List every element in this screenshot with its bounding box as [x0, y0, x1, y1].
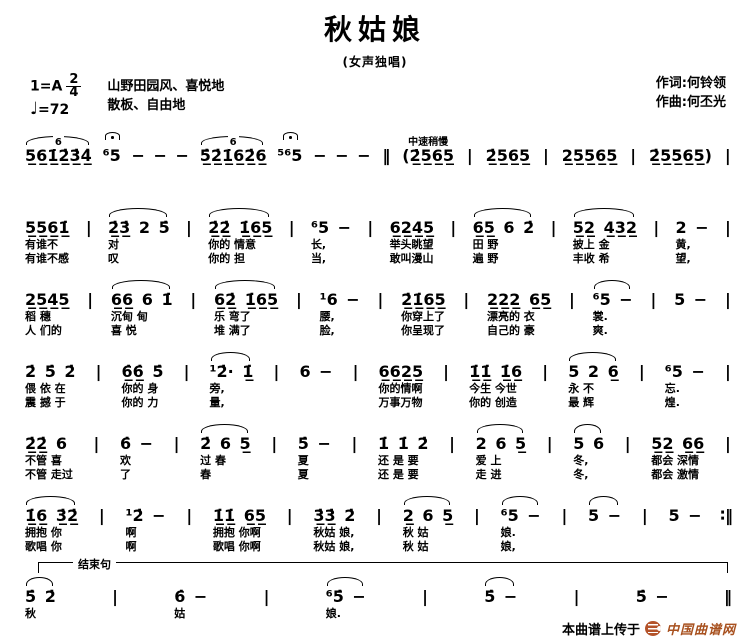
note-group: ‖: [723, 586, 733, 607]
barline: |: [374, 274, 386, 337]
lyric-line-1: [299, 382, 332, 396]
above-layer: [573, 202, 637, 217]
note-group: |: [262, 586, 272, 607]
lyric-line-2: 最 辉: [568, 396, 619, 410]
lyric-line-2: [723, 252, 733, 266]
barline: |: [181, 346, 193, 409]
lyric-line-1: [465, 166, 475, 180]
note-group: 6̲2̲̇ 1̲̇6̲5̲: [214, 289, 278, 310]
above-layer: [271, 346, 281, 361]
lyric-line-1: [188, 310, 198, 324]
lyric-line-2: [559, 540, 569, 554]
fermata-icon: [283, 132, 298, 140]
measure-cell: 2 6 5̲爱 上走 进: [475, 418, 528, 481]
slur-arc: [477, 424, 524, 433]
lyric-line-1: [567, 310, 577, 324]
lyric-line-2: [640, 540, 650, 554]
above-layer: [125, 490, 165, 505]
quarter-note-icon: ♩: [30, 99, 38, 119]
above-layer: [208, 202, 272, 217]
lyric-line-1: [441, 382, 451, 396]
barline: |: [544, 418, 556, 481]
barline: |: [558, 490, 570, 553]
above-layer: [25, 274, 70, 289]
note-group: 1̲̇1̲̇ 1̲̇6̲: [469, 361, 522, 382]
measure-cell: 2̲̇5̲5̲6̲5̲): [648, 130, 713, 193]
slur-arc: [215, 280, 275, 289]
above-layer: [559, 490, 569, 505]
above-layer: [476, 418, 527, 433]
lyric-line-2: 敢叫漫山: [390, 252, 435, 266]
measure-cell: 5 −: [668, 490, 703, 553]
composer: 作曲:何丕光: [656, 93, 726, 112]
above-layer: [447, 418, 457, 433]
note-group: 6̇ −: [120, 433, 153, 454]
lyric-line-1: [294, 310, 304, 324]
lyric-line-1: [649, 166, 712, 180]
note-group: ¹6 −: [320, 289, 360, 310]
note-group: |: [628, 145, 638, 166]
note-group: |: [365, 217, 375, 238]
lyric-line-2: 你的 力: [122, 396, 164, 410]
note-group: 6̲5̲ 6 2̇: [473, 217, 535, 238]
lyric-line-2: [674, 324, 707, 338]
score-meta: 1=A24 ♩=72 山野田园风、喜悦地 散板、自由地 作词:何铃领 作曲:何丕…: [0, 70, 750, 119]
site-name: 中国曲谱网: [666, 619, 736, 638]
barline: |: [348, 418, 360, 481]
above-layer: [562, 130, 618, 145]
measure-cell: 6̲5̲ 6 2̇田 野遍 野: [472, 202, 536, 265]
above-layer: [200, 418, 251, 433]
above-layer: [720, 490, 733, 505]
barline: |: [647, 274, 659, 337]
above-layer: [262, 571, 272, 586]
above-layer: [723, 130, 733, 145]
system-row: 65̲6̲1̲̇2̲̇3̲̇4̲̇⁶5− − −65̲̇2̲̇1̲̇6̲2̲̇6…: [24, 130, 734, 193]
above-layer: [379, 346, 424, 361]
slur-arc: [26, 577, 53, 586]
measure-cell: 5̇ −夏夏: [297, 418, 332, 481]
note-group: |: [648, 289, 658, 310]
note-group: |: [559, 505, 569, 526]
lyric-line-1: [287, 238, 297, 252]
above-layer: [287, 202, 297, 217]
above-layer: [120, 418, 153, 433]
above-layer: [313, 490, 355, 505]
lyric-line-1: [91, 454, 101, 468]
lyric-line-1: [375, 310, 385, 324]
lyric-line-2: [188, 324, 198, 338]
measure-cell: − − −: [131, 130, 190, 193]
lyric-line-1: [182, 382, 192, 396]
above-layer: 中速稍慢: [402, 130, 454, 145]
lyric-line-1: 还 是 要: [378, 454, 429, 468]
barline: |: [261, 571, 273, 634]
lyric-line-1: [269, 454, 279, 468]
above-layer: [313, 130, 370, 145]
note-group: |: [172, 433, 182, 454]
note-group: |: [287, 217, 297, 238]
above-layer: [25, 346, 76, 361]
upload-text: 本曲谱上传于: [562, 619, 640, 638]
lyric-line-2: [720, 540, 733, 554]
above-layer: [637, 346, 647, 361]
note-group: − − −: [313, 145, 370, 166]
lyric-line-1: [559, 526, 569, 540]
above-layer: [568, 346, 619, 361]
above-layer: [545, 418, 555, 433]
above-layer: [472, 490, 482, 505]
note-group: |: [637, 361, 647, 382]
above-layer: 6: [200, 130, 267, 145]
slur-arc: [26, 496, 75, 505]
note-group: 2̲5̲4̲5̲: [25, 289, 70, 310]
above-layer: [277, 130, 302, 145]
system-row: 1̲̇6̲ 3̲̇2̲̇拥抱 你歌唱 你|¹2̇ −啊啊|1̲̇1̲̇ 6̲5̲…: [24, 490, 734, 553]
lyric-line-2: 人 们的: [25, 324, 70, 338]
note-group: 2̲2̲2̲ 6̲5̲: [487, 289, 551, 310]
lyric-line-2: [567, 324, 577, 338]
barline: |: [627, 130, 639, 193]
above-layer: [484, 571, 517, 586]
score-system: 2̇ 5̇ 2̇偎 依 在震 撼 于|6̲̇6̲̇ 5̇你的 身你的 力|¹2̇…: [24, 346, 734, 409]
lyric-line-1: 啊: [125, 526, 165, 540]
lyric-line-2: 啊: [125, 540, 165, 554]
lyric-line-2: 不管 走过: [25, 468, 73, 482]
lyric-line-2: [103, 180, 121, 194]
lyric-line-1: 拥抱 你啊: [213, 526, 266, 540]
lyric-line-2: [486, 180, 531, 194]
above-layer: [651, 418, 704, 433]
lyric-line-2: 自己的 豪: [487, 324, 551, 338]
measure-cell: 1̲̇6̲ 3̲̇2̲̇拥抱 你歌唱 你: [24, 490, 79, 553]
lyric-line-2: [637, 396, 647, 410]
barline: |: [96, 490, 108, 553]
lyric-line-2: 万事万物: [379, 396, 424, 410]
lyric-line-2: [588, 540, 621, 554]
lyric-line-2: [262, 621, 272, 635]
lyric-line-1: 秋姑 娘,: [313, 526, 355, 540]
above-layer: [674, 274, 707, 289]
measure-cell: ¹2̇ −啊啊: [124, 490, 166, 553]
lyric-line-1: [640, 526, 650, 540]
measure-cell: 5̲5̲6̲1̲̇有谁不有谁不感: [24, 202, 71, 265]
measure-cell: ⁶5 −忘.煌.: [664, 346, 706, 409]
above-layer: [549, 202, 559, 217]
note-group: |: [85, 289, 95, 310]
note-group: ¹2̇· 1̲̇: [210, 361, 254, 382]
lyric-line-2: 量,: [210, 396, 254, 410]
note-group: |: [545, 433, 555, 454]
lyric-line-1: [200, 166, 267, 180]
slur-arc: [201, 424, 248, 433]
measure-cell: 6̲6̲2̲5̲你的情啊万事万物: [378, 346, 425, 409]
lyric-line-2: [723, 180, 733, 194]
lyric-line-1: [720, 526, 733, 540]
lyric-line-2: [287, 252, 297, 266]
above-layer: [25, 571, 56, 586]
lyric-line-1: [545, 454, 555, 468]
fermata-icon: [105, 132, 120, 140]
note-group: 2 6 5̲: [476, 433, 527, 454]
above-layer: [110, 571, 120, 586]
lyric-line-1: 秋: [25, 607, 56, 621]
above-layer: 6: [25, 130, 92, 145]
lyric-line-1: [562, 166, 618, 180]
lyric-line-1: [277, 166, 302, 180]
lyric-line-1: 过 春: [200, 454, 251, 468]
above-layer: [294, 274, 304, 289]
style-line-2: 散板、自由地: [107, 96, 224, 115]
lyric-line-1: [85, 310, 95, 324]
lyric-line-1: [103, 166, 121, 180]
above-layer: [486, 130, 531, 145]
lyric-line-2: [420, 621, 430, 635]
lyric-line-2: [25, 621, 56, 635]
measure-cell: ⁶5 −裳.爽.: [592, 274, 634, 337]
slur-arc: [209, 208, 269, 217]
note-group: |: [723, 433, 733, 454]
measure-cell: 65̲̇2̲̇1̲̇6̲2̲̇6̲: [199, 130, 268, 193]
note-group: |: [723, 145, 733, 166]
system-row: 5̲5̲6̲1̲̇有谁不有谁不感|2̲̇3̲̇ 2 5̇对叹|2̲̇2̲̇ 1̇…: [24, 202, 734, 265]
slur-arc: [474, 208, 532, 217]
measure-cell: 2̲̇2̲̇ 1̲̇6̲5̲你的 情意你的 担: [207, 202, 273, 265]
style-line-1: 山野田园风、喜悦地: [107, 77, 224, 96]
lyric-line-1: 有谁不: [25, 238, 70, 252]
note-group: |: [94, 361, 104, 382]
measure-cell: 中速稍慢(2̲̇5̲6̲5̲: [401, 130, 455, 193]
barline: |: [350, 346, 362, 409]
note-group: |: [271, 361, 281, 382]
lyric-line-2: [285, 540, 295, 554]
note-group: |: [447, 433, 457, 454]
above-layer: [623, 418, 633, 433]
above-layer: [188, 274, 198, 289]
lyric-line-1: 你的情啊: [379, 382, 424, 396]
ending-bracket: 结束句: [38, 562, 728, 573]
measure-cell: 6̲2̲̇ 1̲̇6̲5̲乐 弯了堆 满了: [213, 274, 279, 337]
note-group: 2 −: [676, 217, 709, 238]
above-layer: [184, 490, 194, 505]
barline: |: [84, 274, 96, 337]
lyric-line-1: 乐 弯了: [214, 310, 278, 324]
lyric-line-2: [472, 540, 482, 554]
above-layer: [401, 274, 446, 289]
lyric-line-2: [649, 180, 712, 194]
lyric-line-2: [351, 396, 361, 410]
above-layer: [111, 274, 173, 289]
measure-cell: 1̇ 1̇ 2̇还 是 要还 是 要: [377, 418, 430, 481]
measure-cell: 5 2 6̲永 不最 辉: [567, 346, 620, 409]
measure-cell: 6̲6̲ 6 1̇沉甸 甸喜 悦: [110, 274, 174, 337]
lyric-line-1: 永 不: [568, 382, 619, 396]
note-group: 2̲5̲5̲6̲5̲: [562, 145, 618, 166]
measure-cell: 2̇ 6 5̲过 春春: [199, 418, 252, 481]
above-layer: [469, 346, 522, 361]
lyric-line-2: [381, 180, 391, 194]
above-layer: [723, 346, 733, 361]
lyric-line-1: 你的 情意: [208, 238, 272, 252]
lyric-line-1: 沉甸 甸: [111, 310, 173, 324]
note-group: |: [97, 505, 107, 526]
above-layer: [103, 130, 121, 145]
above-layer: [349, 418, 359, 433]
slur-arc: [327, 577, 363, 586]
above-layer: [122, 346, 164, 361]
above-layer: [636, 571, 669, 586]
lyric-line-2: 都会 激情: [651, 468, 704, 482]
above-layer: [669, 490, 702, 505]
above-layer: [299, 346, 332, 361]
lyric-line-1: 你穿上了: [401, 310, 446, 324]
lyric-line-2: 秋姑 娘,: [313, 540, 355, 554]
above-layer: [573, 418, 604, 433]
measure-cell: 2̲̇2̲̇ 6不管 喜不管 走过: [24, 418, 74, 481]
lyric-line-2: [326, 621, 366, 635]
above-layer: [365, 202, 375, 217]
note-group: |: [182, 361, 192, 382]
above-label: 6: [228, 136, 239, 149]
barline: |: [440, 346, 452, 409]
note-group: 5̇ 2̇: [25, 586, 56, 607]
measure-cell: 5 −: [587, 490, 622, 553]
note-group: 6̲6̲2̲5̲: [379, 361, 424, 382]
barline: |: [446, 418, 458, 481]
lyric-line-2: [313, 180, 370, 194]
note-group: ⁵⁶5: [277, 145, 302, 166]
note-group: 5̲2̲ 6̲6̲: [651, 433, 704, 454]
score-system: 65̲6̲1̲̇2̲̇3̲̇4̲̇⁶5− − −65̲̇2̲̇1̲̇6̲2̲̇6…: [24, 130, 734, 193]
above-layer: [172, 418, 182, 433]
lyric-line-2: [669, 540, 702, 554]
note-group: 5̇ −: [298, 433, 331, 454]
lyric-line-1: [184, 238, 194, 252]
barline: |: [373, 490, 385, 553]
song-subtitle: (女声独唱): [0, 53, 750, 70]
lyric-line-2: [269, 468, 279, 482]
lyric-line-1: [486, 166, 531, 180]
slur-arc: [211, 352, 251, 361]
slur-arc: [485, 577, 514, 586]
lyric-line-1: 你的 身: [122, 382, 164, 396]
lyric-line-2: [172, 468, 182, 482]
lyric-line-2: [174, 621, 207, 635]
measure-cell: 6̲̇6̲̇ 5̇你的 身你的 力: [121, 346, 165, 409]
note-group: 3̲̇3̲̇ 2̇: [313, 505, 355, 526]
note-group: 2̲ 6 5̲: [403, 505, 454, 526]
lyric-line-1: 娘.: [501, 526, 541, 540]
measure-cell: 6̇ −姑: [173, 571, 208, 634]
lyric-line-1: [262, 607, 272, 621]
above-layer: [375, 274, 385, 289]
note-group: |: [572, 586, 582, 607]
measure-cell: 2̲ 6 5̲秋 姑秋 姑: [402, 490, 455, 553]
note-group: 5̲5̲6̲1̲̇: [25, 217, 70, 238]
measure-cell: ¹6 −腰,脸,: [319, 274, 361, 337]
lyric-line-1: [628, 166, 638, 180]
note-group: 5 2 6̲: [568, 361, 619, 382]
note-group: |: [567, 289, 577, 310]
note-group: 6̲̇6̲̇ 5̇: [122, 361, 164, 382]
measure-cell: − − −: [312, 130, 371, 193]
measure-cell: 2̲5̲5̲6̲5̲: [561, 130, 619, 193]
score-system: 5̲5̲6̲1̲̇有谁不有谁不感|2̲̇3̲̇ 2 5̇对叹|2̲̇2̲̇ 1̇…: [24, 202, 734, 265]
lyric-line-2: 了: [120, 468, 153, 482]
lyric-line-1: 拥抱 你: [25, 526, 78, 540]
lyric-line-1: [97, 526, 107, 540]
above-layer: [108, 202, 170, 217]
note-group: ⁶5 −: [593, 289, 633, 310]
notation-area: 65̲6̲1̲̇2̲̇3̲̇4̲̇⁶5− − −65̲̇2̲̇1̲̇6̲2̲̇6…: [0, 119, 750, 634]
lyric-line-1: [94, 382, 104, 396]
above-layer: [540, 346, 550, 361]
lyric-line-2: 歌唱 你啊: [213, 540, 266, 554]
note-group: |: [448, 217, 458, 238]
measure-cell: 1̲̇1̲̇ 1̲̇6̲今生 今世你的 创造: [468, 346, 523, 409]
above-layer: [593, 274, 633, 289]
lyric-line-2: [375, 324, 385, 338]
lyric-line-1: [447, 454, 457, 468]
barline: |: [722, 346, 734, 409]
lyric-line-1: [461, 310, 471, 324]
lyric-line-2: 还 是 要: [378, 468, 429, 482]
note-group: |: [184, 217, 194, 238]
lyric-line-1: 漂亮的 衣: [487, 310, 551, 324]
note-group: 6 −: [299, 361, 332, 382]
lyric-line-1: 腰,: [320, 310, 360, 324]
above-layer: [25, 202, 70, 217]
lyric-line-1: [648, 310, 658, 324]
lyric-line-1: [420, 607, 430, 621]
credits: 作词:何铃领 作曲:何丕光: [656, 74, 726, 112]
barline: |: [284, 490, 296, 553]
barline: |: [540, 130, 552, 193]
barline: |: [539, 346, 551, 409]
lyric-line-1: 旁,: [210, 382, 254, 396]
note-group: 5 6: [573, 433, 604, 454]
slur-arc: [109, 208, 167, 217]
lyric-line-2: [441, 396, 451, 410]
lyric-line-1: [723, 310, 733, 324]
lyricist: 作词:何铃领: [656, 74, 726, 93]
lyric-line-2: 当,: [311, 252, 351, 266]
barline: |: [293, 274, 305, 337]
measure-cell: 2̲2̲2̲ 6̲5̲漂亮的 衣自己的 豪: [486, 274, 552, 337]
lyric-line-1: [541, 166, 551, 180]
lyric-line-1: [402, 166, 454, 180]
above-label: 中速稍慢: [406, 136, 450, 149]
measure-cell: ⁶5̇ −娘.: [325, 571, 367, 634]
time-signature: 24: [66, 74, 81, 99]
measure-cell: 5̲2̲ 4̲3̲2̲披上 金丰收 希: [572, 202, 638, 265]
above-layer: [132, 130, 189, 145]
barline: |: [171, 418, 183, 481]
note-group: 5 −: [669, 505, 702, 526]
note-group: |: [723, 361, 733, 382]
lyric-line-1: [184, 526, 194, 540]
measure-cell: 5 −: [673, 274, 708, 337]
note-group: 1̲̇6̲ 3̲̇2̲̇: [25, 505, 78, 526]
above-label: 6: [53, 136, 64, 149]
note-group: 5̇ −: [636, 586, 669, 607]
lyric-line-2: [562, 180, 618, 194]
note-group: |: [623, 433, 633, 454]
lyric-line-1: [723, 454, 733, 468]
note-group: |: [723, 289, 733, 310]
lyric-line-1: [472, 526, 482, 540]
note-group: 2̲̇3̲̇ 2 5̇: [108, 217, 170, 238]
